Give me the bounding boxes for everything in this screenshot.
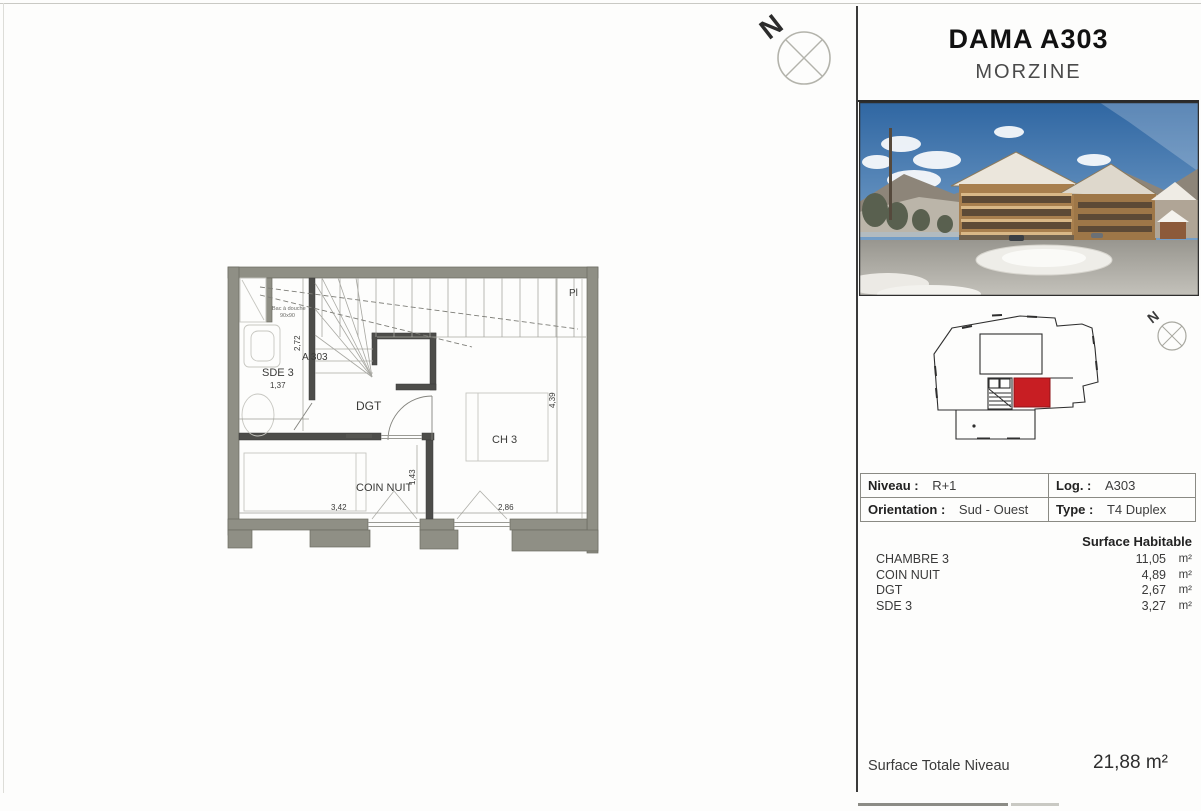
key-plan-north-compass: N [1144,300,1192,360]
unit-plan-label: A 303 [302,352,328,363]
surface-row: CHAMBRE 3 11,05 m² [860,552,1196,568]
floor-plan: Pl A 303 SDE 3 1,37 DGT CH 3 COIN NUIT B… [226,263,604,555]
pier-balcony-left [310,530,370,547]
room-label-dgt: DGT [356,399,382,413]
surface-row: DGT 2,67 m² [860,583,1196,599]
niveau-value: R+1 [922,478,956,493]
unit-title: DAMA A303 [858,24,1199,55]
washbasin-icon [242,394,274,436]
building-photo [859,102,1199,296]
room-label-ch3: CH 3 [492,434,517,446]
wall-bottom-mid [420,519,454,530]
surface-row: COIN NUIT 4,89 m² [860,568,1196,584]
room-label-pl: Pl [569,288,578,299]
north-compass: N [756,6,840,90]
page-top-border [0,3,1201,4]
surface-room-unit: m² [1166,568,1196,584]
surface-header: Surface Habitable [860,534,1196,549]
surface-row: SDE 3 3,27 m² [860,599,1196,615]
type-value: T4 Duplex [1097,502,1166,517]
surface-room-value: 4,89 [1120,568,1166,584]
bed-coin-nuit [244,453,366,511]
surface-room-unit: m² [1166,552,1196,568]
wall-sde3-right [309,278,315,400]
total-surface-label: Surface Totale Niveau [868,758,1010,774]
key-plan [922,306,1142,466]
total-surface-value: 21,88 m² [1093,752,1168,774]
dim-sde3-height: 2,72 [293,335,302,351]
room-label-coin-nuit: COIN NUIT [356,482,413,494]
wall-bottom-left [228,519,368,530]
wall-closet-right [430,333,436,390]
surface-room-unit: m² [1166,583,1196,599]
north-label: N [756,8,789,45]
niveau-cell: Niveau : R+1 [861,474,1049,498]
type-label: Type : [1056,502,1093,517]
dim-ch3-height: 4,39 [548,392,557,408]
pier-balcony-mid [420,530,458,549]
orientation-label: Orientation : [868,502,945,517]
stair-climb-line [260,287,578,329]
footer-line-light [1011,803,1059,806]
orientation-value: Sud - Ouest [949,502,1028,517]
log-label: Log. : [1056,478,1091,493]
shower-label-2: 90x90 [280,313,295,319]
pier-left [228,530,252,548]
wall-left [228,267,239,535]
wall-top [228,267,598,278]
north-small-label: N [1144,308,1162,327]
surface-room-name: COIN NUIT [860,568,1120,584]
niveau-label: Niveau : [868,478,919,493]
surface-room-value: 11,05 [1120,552,1166,568]
title-box: DAMA A303 MORZINE [858,6,1199,102]
info-table: Niveau : R+1 Log. : A303 Orientation : S… [860,473,1196,522]
highlighted-unit [1014,378,1050,407]
wall-bottom-right [510,519,587,530]
staircase [315,278,586,377]
dim-sde3-width: 1,37 [270,381,286,390]
wall-closet-bottom [396,384,436,390]
footer-line-dark [858,803,1008,806]
wall-right [587,267,598,553]
shower-label-1: Bac à douche [272,306,306,312]
surface-room-value: 2,67 [1120,583,1166,599]
surface-table: Surface Habitable CHAMBRE 3 11,05 m² COI… [860,534,1196,614]
surface-room-unit: m² [1166,599,1196,615]
surface-room-value: 3,27 [1120,599,1166,615]
type-cell: Type : T4 Duplex [1049,498,1196,522]
log-value: A303 [1095,478,1135,493]
dim-coin-width: 3,42 [331,503,347,512]
surface-room-name: DGT [860,583,1120,599]
room-label-sde3: SDE 3 [262,367,294,379]
orientation-cell: Orientation : Sud - Ouest [861,498,1049,522]
pier-balcony-right [512,530,598,551]
project-name: MORZINE [858,61,1199,84]
log-cell: Log. : A303 [1049,474,1196,498]
dim-ch3-width: 2,86 [498,503,514,512]
dim-coin-height: 1,43 [408,469,417,485]
window-swing-left-icon [372,491,417,519]
sidebar: DAMA A303 MORZINE [856,6,1199,792]
surface-room-name: CHAMBRE 3 [860,552,1120,568]
page-left-border [3,3,4,793]
wall-coin-ch3 [426,440,433,519]
wall-shower [266,278,272,322]
surface-room-name: SDE 3 [860,599,1120,615]
